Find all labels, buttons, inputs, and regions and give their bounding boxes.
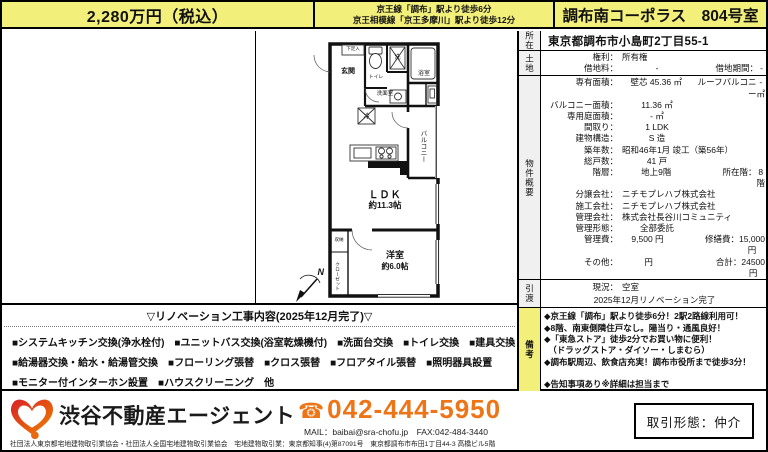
location-content: 東京都調布市小島町2丁目55-1 xyxy=(541,31,768,50)
remark-line: ◆「東急ストア」徒歩2分でお買い物に便利！ xyxy=(544,334,765,345)
panel-divider xyxy=(255,31,256,305)
table-row: バルコニー面積： 11.36 ㎡ xyxy=(544,100,765,111)
table-row: 管理会社： 株式会社長谷川コミュニティ xyxy=(544,212,765,223)
label-toilet: トイレ xyxy=(365,73,387,80)
section-label-overview: 物件概要 xyxy=(519,76,541,279)
row-value2: 8階 xyxy=(757,167,766,189)
row-label: 管理費： xyxy=(544,234,618,256)
section-label-remarks: 備考 xyxy=(519,308,541,391)
remark-line: ◆京王線「調布」駅より徒歩6分！2駅2路線利用可！ xyxy=(544,311,765,322)
phone-digits: 042-444-5950 xyxy=(327,394,501,424)
section-handover: 引渡 現況： 空室 2025年12月リノベーション完了 xyxy=(519,280,768,308)
row-label: 管理形態： xyxy=(544,223,618,234)
row-label: 専有面積： xyxy=(544,77,618,99)
row-label2: ルーフバルコニー xyxy=(695,77,757,99)
row-value: 株式会社長谷川コミュニティ xyxy=(618,212,765,223)
label-washer: 洗 xyxy=(390,52,405,61)
row-label: 権利： xyxy=(544,52,618,63)
remark-line xyxy=(544,368,765,379)
row-label: バルコニー面積： xyxy=(544,100,618,111)
row-value2: 24500 円 xyxy=(741,257,765,279)
table-row: 総戸数： 41 戸 xyxy=(544,156,765,167)
table-row: 権利： 所有権 xyxy=(544,52,765,63)
remark-line: ◆8階、南東側隣住戸なし。陽当り・通風良好！ xyxy=(544,323,765,334)
row-label: 専用庭面積： xyxy=(544,111,618,122)
section-overview: 物件概要 専有面積： 壁芯 45.36 ㎡ ルーフバルコニー - ㎡ バルコニー… xyxy=(519,76,768,280)
row-label: 総戸数： xyxy=(544,156,618,167)
row-value2: - xyxy=(758,63,765,74)
row-value2: 15,000 円 xyxy=(739,234,765,256)
property-table: 所在 東京都調布市小島町2丁目55-1 土地 権利： 所有権 借地料： - 借地… xyxy=(517,31,768,391)
table-row: その他： 円 合計： 24500 円 xyxy=(544,257,765,279)
table-row: 建物構造： S 造 xyxy=(544,133,765,144)
property-flyer: 2,280万円（税込） 京王線「調布」駅より徒歩6分 京王相模線「京王多摩川」駅… xyxy=(0,0,768,452)
north-label: N xyxy=(318,267,325,277)
row-label: 間取り： xyxy=(544,122,618,133)
heart-logo-icon xyxy=(8,395,56,443)
land-content: 権利： 所有権 借地料： - 借地期間： - xyxy=(541,51,768,75)
price-cell: 2,280万円（税込） xyxy=(2,2,315,29)
section-label-location: 所在 xyxy=(519,31,541,50)
remark-line: ◆告知事項あり※詳細は担当まで xyxy=(544,379,765,390)
table-row: 専有面積： 壁芯 45.36 ㎡ ルーフバルコニー - ㎡ xyxy=(544,77,765,99)
row-label2: 所在階： xyxy=(695,167,757,189)
table-row: 階層： 地上9階 所在階： 8階 xyxy=(544,167,765,189)
table-row: 管理形態： 全部委託 xyxy=(544,223,765,234)
row-value: 壁芯 45.36 ㎡ xyxy=(618,77,695,99)
table-row: 築年数： 昭和46年1月 竣工（築56年） xyxy=(544,145,765,156)
footer: 渋谷不動産エージェント ☎042-444-5950 MAIL：baibai@sr… xyxy=(2,391,766,450)
label-fridge: 冷 xyxy=(358,110,375,120)
renovation-title: ▽リノベーション工事内容(2025年12月完了)▽ xyxy=(4,305,515,327)
row-value: S 造 xyxy=(618,133,696,144)
mail-fax: MAIL：baibai@sra-chofu.jp FAX:042-484-344… xyxy=(304,426,488,438)
row-label2: 合計： xyxy=(679,257,741,279)
remark-line: （ドラッグストア・ダイソー・しまむら） xyxy=(544,345,765,356)
row-value: ニチモプレハブ株式会社 xyxy=(618,189,765,200)
floor-plan: 下足入 玄関 トイレ 洗 浴室 洗面室 冷 バルコニー ＬＤＫ 約11.3帖 洋… xyxy=(312,42,440,298)
row-label: 築年数： xyxy=(544,145,618,156)
row-label: 建物構造： xyxy=(544,133,618,144)
phone-icon: ☎ xyxy=(298,400,325,423)
table-row: 専用庭面積： - ㎡ xyxy=(544,111,765,122)
renovation-line: ■給湯器交換・給水・給湯管交換 ■フローリング張替 ■クロス張替 ■フロアタイル… xyxy=(12,354,517,374)
label-entrance: 玄関 xyxy=(332,66,364,76)
phone-number: ☎042-444-5950 xyxy=(298,394,501,425)
renovation-line: ■システムキッチン交換(浄水栓付) ■ユニットバス交換(浴室乾燥機付) ■洗面台… xyxy=(12,334,517,354)
row-value: 1 LDK xyxy=(618,122,696,133)
row-label2: 借地期間： xyxy=(696,63,758,74)
row-label: 現況： xyxy=(544,281,618,294)
row-label: 管理会社： xyxy=(544,212,618,223)
row-value2: - ㎡ xyxy=(757,77,766,99)
remarks-content: ◆京王線「調布」駅より徒歩6分！2駅2路線利用可！ ◆8階、南東側隣住戸なし。陽… xyxy=(541,308,768,391)
row-label: 借地料： xyxy=(544,63,618,74)
row-value: 空室 xyxy=(618,281,765,294)
row-label: 分譲会社： xyxy=(544,189,618,200)
table-row: 間取り： 1 LDK xyxy=(544,122,765,133)
price-text: 2,280万円（税込） xyxy=(87,3,229,27)
label-bedroom-size: 約6.0帖 xyxy=(364,261,426,272)
label-shoe-box: 下足入 xyxy=(340,46,366,52)
company-name: 渋谷不動産エージェント xyxy=(59,400,295,430)
row-value: 所有権 xyxy=(618,52,765,63)
handover-note: 2025年12月リノベーション完了 xyxy=(544,294,765,307)
section-label-land: 土地 xyxy=(519,51,541,75)
address: 東京都調布市小島町2丁目55-1 xyxy=(544,33,709,49)
row-value: - xyxy=(618,63,696,74)
table-row: 分譲会社： ニチモプレハブ株式会社 xyxy=(544,189,765,200)
table-row: 現況： 空室 xyxy=(544,281,765,294)
label-bath: 浴室 xyxy=(410,68,438,77)
label-bedroom: 洋室 xyxy=(364,248,426,261)
label-balcony: バルコニー xyxy=(417,120,427,172)
deal-type-box: 取引形態：仲介 xyxy=(634,403,754,439)
row-value: 全部委託 xyxy=(618,223,696,234)
row-value: 41 戸 xyxy=(618,156,696,167)
row-value: 地上9階 xyxy=(618,167,695,189)
label-closet: クローゼット xyxy=(333,256,340,296)
license-fine-print: 社団法人東京都宅地建物取引業協会・社団法人全国宅地建物取引業協会 宅地建物取引業… xyxy=(10,438,495,448)
label-storage: 収納 xyxy=(331,237,347,243)
row-label: 施工会社： xyxy=(544,201,618,212)
section-label-handover: 引渡 xyxy=(519,280,541,307)
row-value: 9,500 円 xyxy=(618,234,677,256)
north-compass: N xyxy=(294,269,324,303)
deal-type: 取引形態：仲介 xyxy=(647,412,742,431)
access-line1: 京王線「調布」駅より徒歩6分 xyxy=(376,4,491,15)
row-label2: 修繕費： xyxy=(677,234,739,256)
section-location: 所在 東京都調布市小島町2丁目55-1 xyxy=(519,31,768,51)
section-remarks: 備考 ◆京王線「調布」駅より徒歩6分！2駅2路線利用可！ ◆8階、南東側隣住戸な… xyxy=(519,308,768,391)
row-value: 円 xyxy=(618,257,679,279)
row-value: - ㎡ xyxy=(618,111,696,122)
building-title-cell: 調布南コーポラス 804号室 xyxy=(555,2,766,29)
renovation-section: ▽リノベーション工事内容(2025年12月完了)▽ ■システムキッチン交換(浄水… xyxy=(2,305,517,391)
table-row: 施工会社： ニチモプレハブ株式会社 xyxy=(544,201,765,212)
label-ldk-size: 約11.3帖 xyxy=(350,199,420,211)
row-value: 11.36 ㎡ xyxy=(618,100,696,111)
floor-plan-panel: 下足入 玄関 トイレ 洗 浴室 洗面室 冷 バルコニー ＬＤＫ 約11.3帖 洋… xyxy=(2,31,517,305)
handover-content: 現況： 空室 2025年12月リノベーション完了 xyxy=(541,280,768,307)
access-cell: 京王線「調布」駅より徒歩6分 京王相模線「京王多摩川」駅より徒歩12分 xyxy=(315,2,555,29)
row-value: 昭和46年1月 竣工（築56年） xyxy=(618,145,765,156)
table-row: 借地料： - 借地期間： - xyxy=(544,63,765,74)
table-row: 管理費： 9,500 円 修繕費： 15,000 円 xyxy=(544,234,765,256)
row-label: その他： xyxy=(544,257,618,279)
access-line2: 京王相模線「京王多摩川」駅より徒歩12分 xyxy=(353,15,515,26)
label-washroom: 洗面室 xyxy=(368,89,402,97)
remark-line: ◆調布駅周辺、飲食店充実！調布市役所まで徒歩3分！ xyxy=(544,357,765,368)
building-title: 調布南コーポラス 804号室 xyxy=(562,4,758,26)
overview-content: 専有面積： 壁芯 45.36 ㎡ ルーフバルコニー - ㎡ バルコニー面積： 1… xyxy=(541,76,768,279)
section-land: 土地 権利： 所有権 借地料： - 借地期間： - xyxy=(519,51,768,76)
renovation-lines: ■システムキッチン交換(浄水栓付) ■ユニットバス交換(浴室乾燥機付) ■洗面台… xyxy=(2,327,517,394)
row-value: ニチモプレハブ株式会社 xyxy=(618,201,765,212)
row-label: 階層： xyxy=(544,167,618,189)
